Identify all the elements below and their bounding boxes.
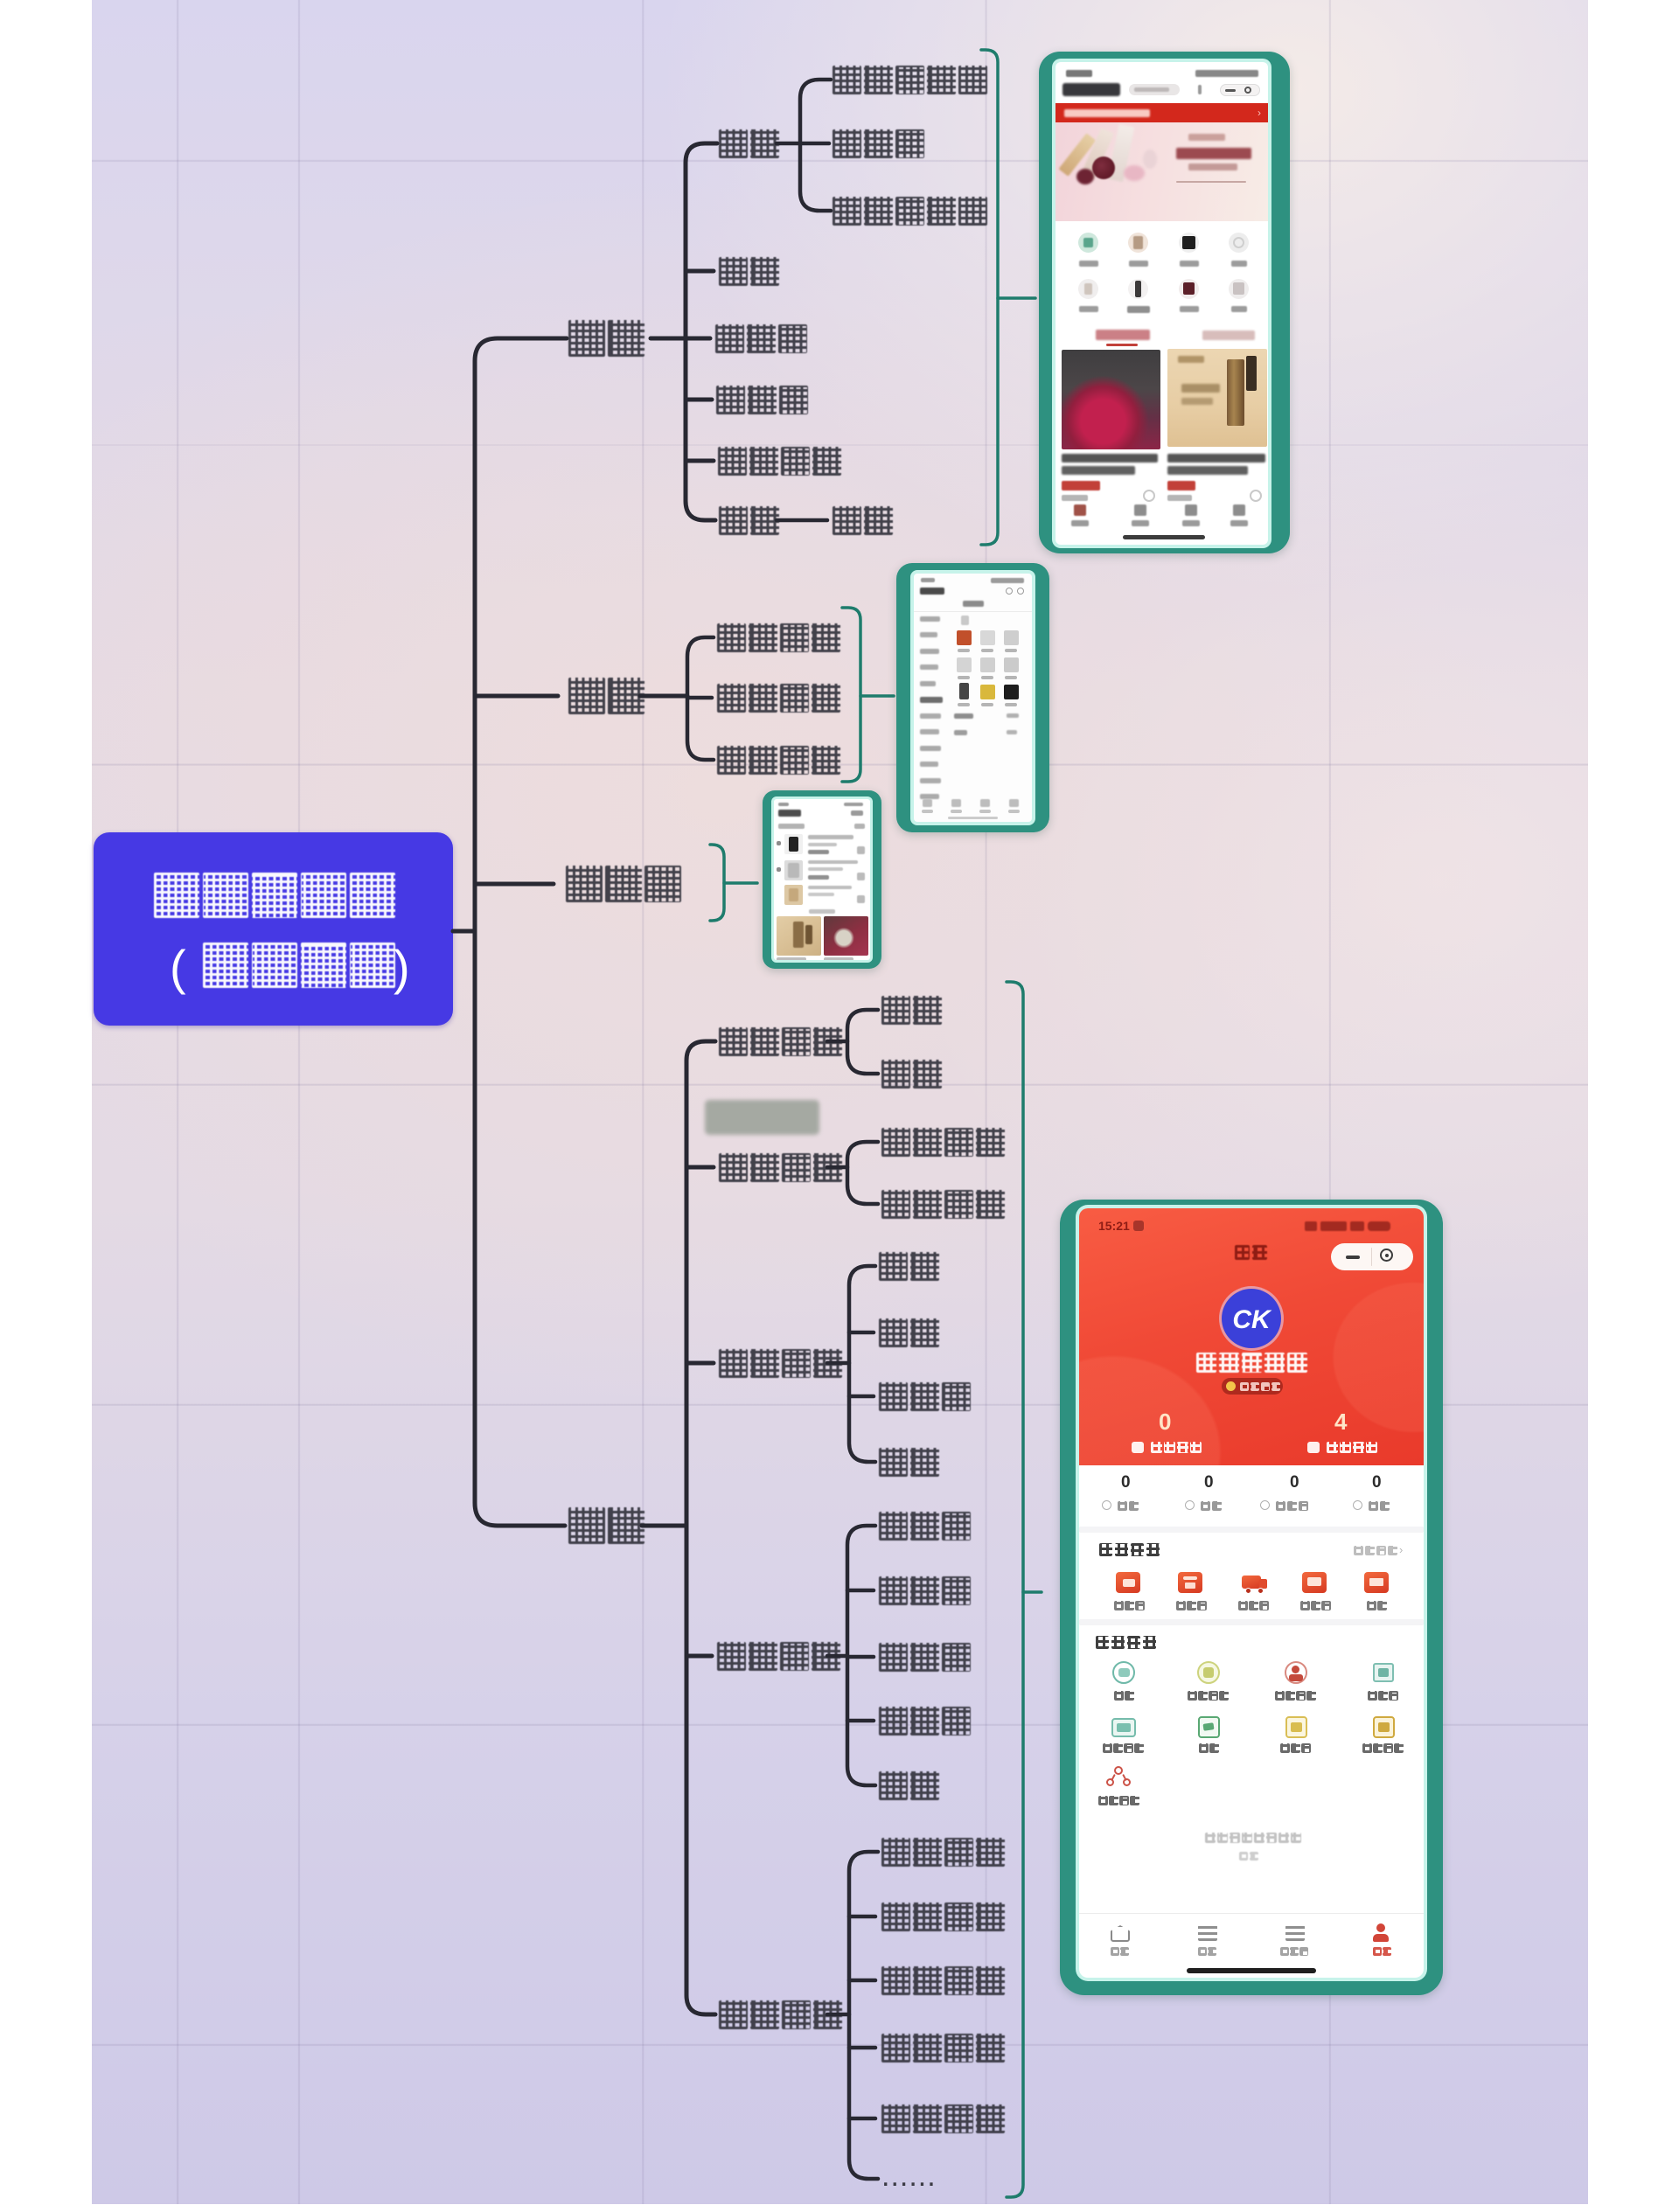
svg-text:CK: CK: [1232, 1305, 1272, 1334]
